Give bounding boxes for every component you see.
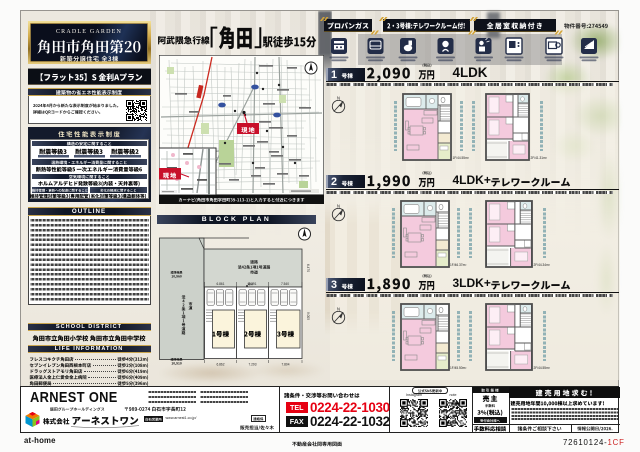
svg-text:N: N <box>336 203 339 208</box>
svg-text:7.540: 7.540 <box>281 282 289 286</box>
svg-text:7.291: 7.291 <box>249 282 257 286</box>
svg-text:6.470: 6.470 <box>306 264 310 272</box>
svg-text:N: N <box>336 96 339 101</box>
svg-text:7.804: 7.804 <box>282 363 290 367</box>
svg-text:7.293: 7.293 <box>249 363 257 367</box>
svg-text:N: N <box>336 306 339 311</box>
svg-text:9.005: 9.005 <box>306 312 310 320</box>
svg-text:6.862: 6.862 <box>217 363 225 367</box>
svg-text:6.861: 6.861 <box>217 282 225 286</box>
